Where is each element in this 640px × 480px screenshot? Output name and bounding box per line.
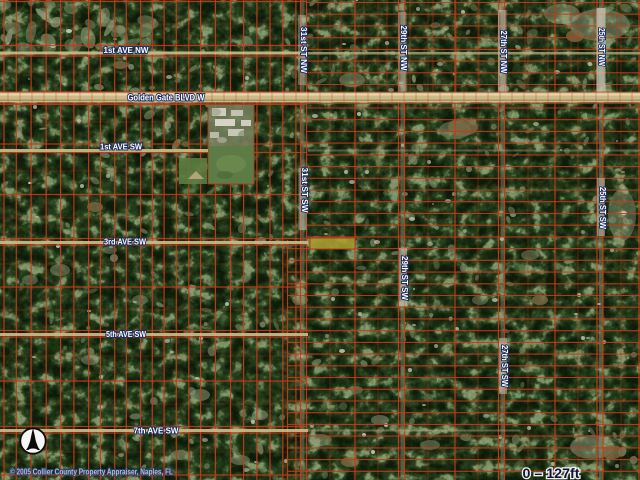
svg-text:25th ST NW: 25th ST NW [597, 28, 606, 67]
svg-text:3rd AVE SW: 3rd AVE SW [104, 238, 146, 247]
svg-text:5th AVE SW: 5th AVE SW [106, 330, 146, 339]
svg-text:27th ST NW: 27th ST NW [499, 31, 508, 75]
svg-text:29th ST NW: 29th ST NW [399, 26, 408, 72]
svg-text:31st ST SW: 31st ST SW [300, 168, 309, 214]
svg-text:© 2005 Collier County Property: © 2005 Collier County Property Appraiser… [10, 468, 173, 477]
svg-text:Golden Gate BLVD W: Golden Gate BLVD W [128, 93, 206, 103]
svg-text:0 – 127ft: 0 – 127ft [523, 465, 580, 480]
svg-text:27th ST SW: 27th ST SW [500, 345, 509, 388]
svg-text:1st AVE NW: 1st AVE NW [104, 46, 149, 55]
svg-text:25th ST SW: 25th ST SW [598, 187, 607, 230]
svg-text:29th ST SW: 29th ST SW [400, 256, 409, 301]
svg-text:7th AVE SW: 7th AVE SW [134, 427, 179, 436]
svg-text:31st ST NW: 31st ST NW [299, 27, 308, 74]
svg-text:1st AVE SW: 1st AVE SW [100, 143, 142, 152]
